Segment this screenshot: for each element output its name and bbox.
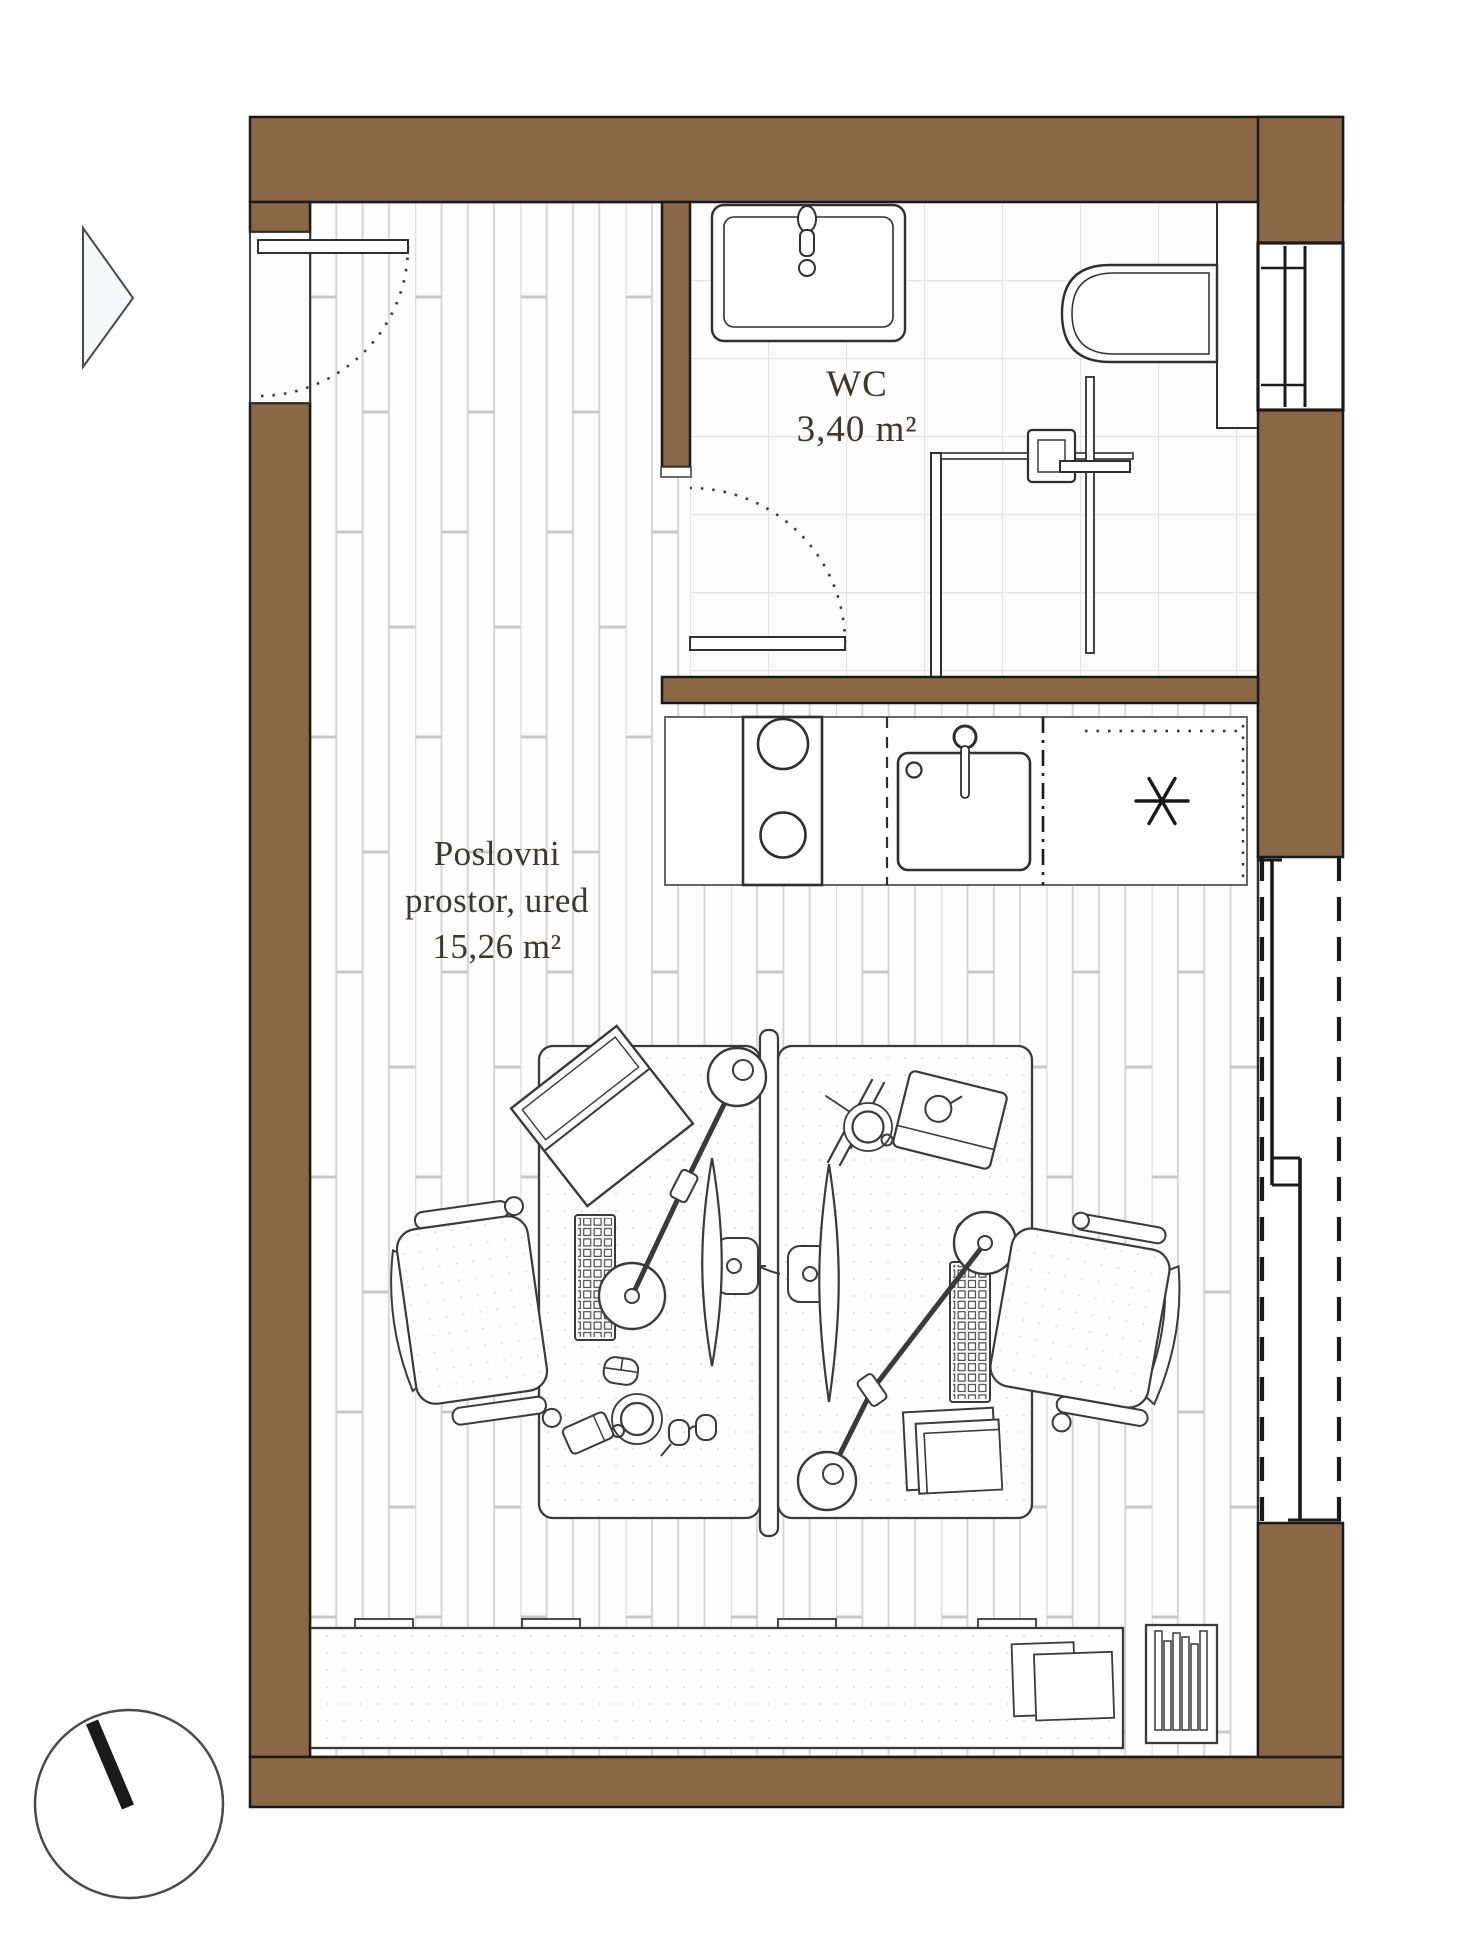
wall-right-upper <box>1258 117 1343 243</box>
wall-bottom <box>250 1757 1343 1807</box>
paper-stack <box>1012 1641 1115 1721</box>
wall-wc-partition <box>662 202 690 467</box>
desk-divider-panel <box>760 1030 778 1536</box>
chair-seat <box>394 1214 549 1407</box>
wall-right-lower <box>1258 1523 1343 1757</box>
office-label-line2: prostor, ured <box>405 881 589 920</box>
cooktop <box>743 717 822 885</box>
wc-door-leaf <box>690 637 845 650</box>
office-area-label: 15,26 m² <box>432 927 561 966</box>
entrance-opening <box>250 232 310 403</box>
sideboard <box>310 1619 1217 1748</box>
wall-top <box>250 117 1343 202</box>
office-label-line1: Poslovni <box>434 834 561 873</box>
partition-end-cap <box>661 467 691 477</box>
toilet-cistern <box>1217 202 1258 428</box>
burner-icon <box>761 813 806 858</box>
coffee-cup-icon <box>612 1394 662 1444</box>
wc-room <box>690 202 1258 678</box>
floor-plan-page: Poslovni prostor, ured 15,26 m² WC 3,40 … <box>0 0 1462 1939</box>
wall-left-lower <box>250 403 310 1757</box>
wall-left-upper <box>250 202 310 232</box>
faucet-spout-icon <box>800 230 814 256</box>
window-wc <box>1258 243 1343 410</box>
shower-glass-wall <box>931 453 941 677</box>
entrance-arrow-icon <box>83 228 133 367</box>
paper-stack <box>903 1407 1002 1494</box>
wall-wc-kitchen <box>662 677 1258 703</box>
drain-icon <box>799 260 815 276</box>
mouse-icon <box>602 1356 639 1386</box>
book-holder <box>1146 1625 1217 1743</box>
workstations <box>511 1026 1032 1536</box>
shower-riser <box>1086 377 1094 653</box>
north-compass <box>35 1710 223 1898</box>
floor-plan-drawing: Poslovni prostor, ured 15,26 m² WC 3,40 … <box>0 0 1462 1939</box>
shower-arm <box>1060 461 1130 472</box>
wc-area-label: 3,40 m² <box>797 409 918 450</box>
wc-sink <box>712 205 905 341</box>
drain-icon <box>907 763 922 778</box>
wall-right-middle <box>1258 410 1343 857</box>
kitchenette <box>665 717 1247 885</box>
shower-head-icon <box>1028 430 1075 482</box>
burner-icon <box>758 719 808 769</box>
sideboard-body <box>310 1628 1123 1748</box>
faucet-handle-icon <box>798 206 816 232</box>
chair-seat <box>987 1225 1172 1410</box>
coffee-cup-icon <box>844 1103 893 1151</box>
window-office-sliding <box>1258 857 1341 1523</box>
wc-label: WC <box>826 364 888 405</box>
entrance-door-leaf <box>258 240 408 253</box>
